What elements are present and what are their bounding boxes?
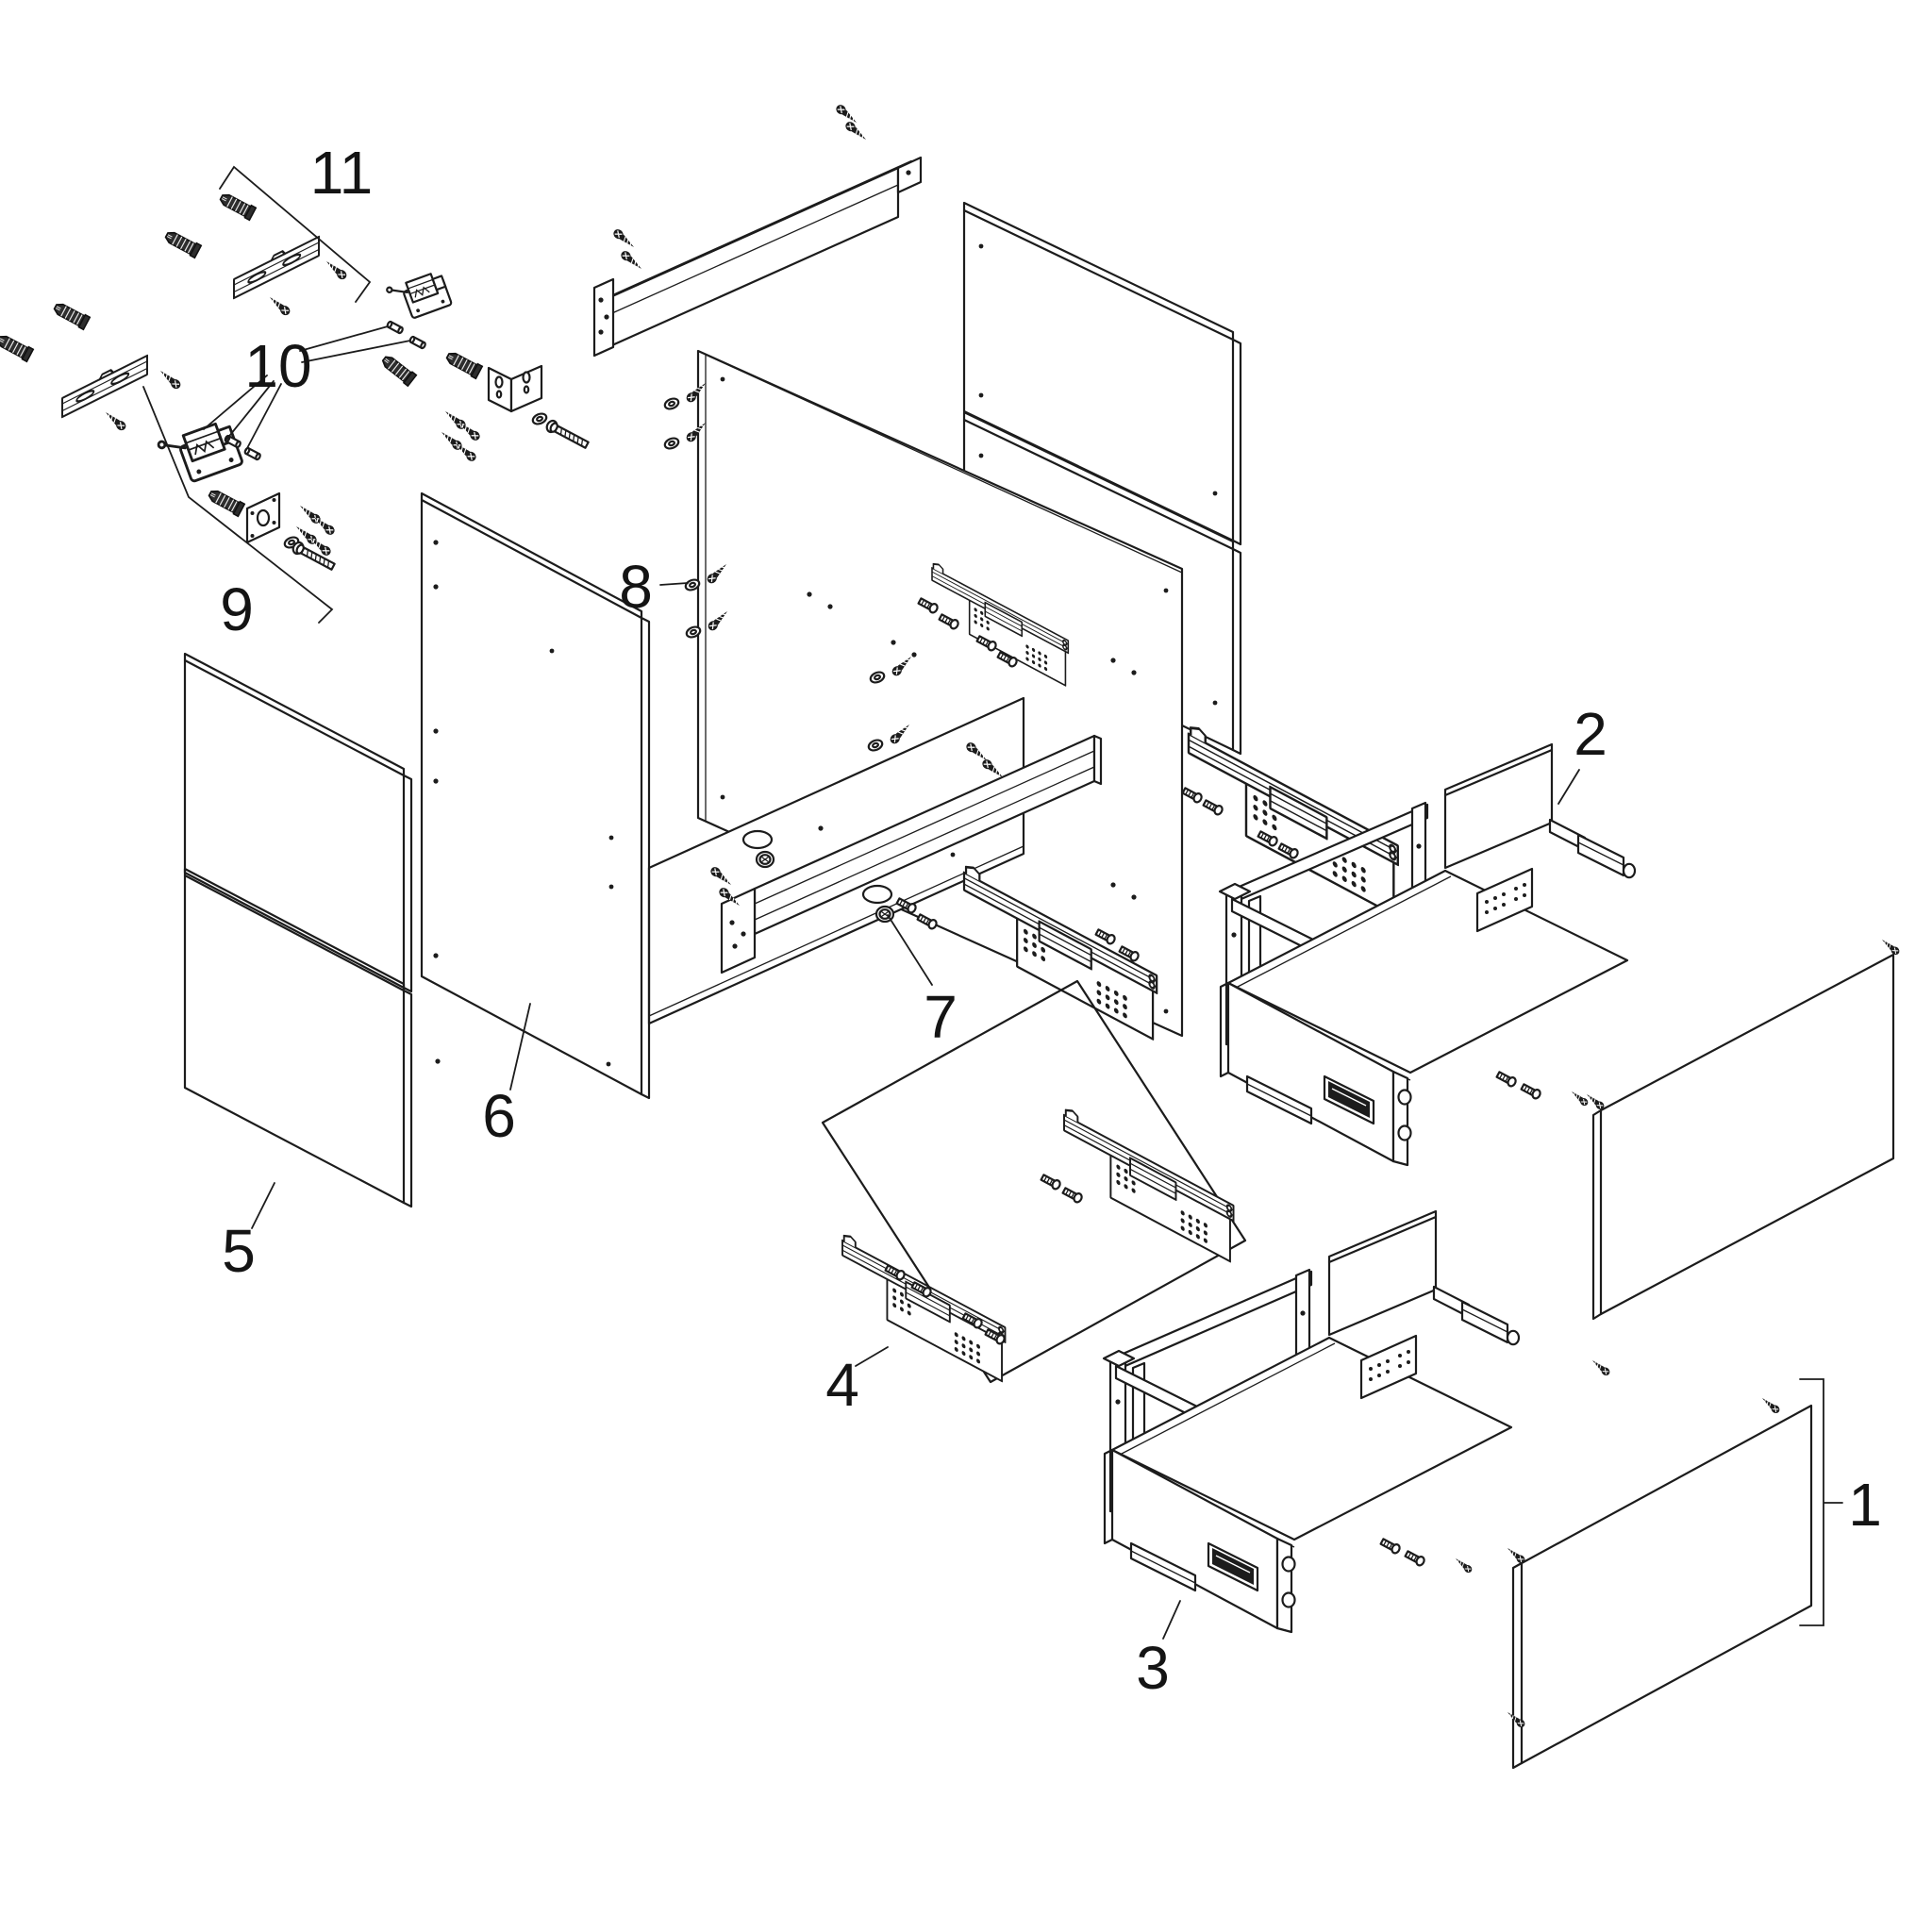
callout-8-label: 8: [619, 553, 653, 621]
callout-6-label: 6: [482, 1082, 516, 1150]
callout-3-label: 3: [1136, 1634, 1170, 1702]
callout-2-label: 2: [1574, 700, 1607, 768]
callout-1-label: 1: [1848, 1471, 1882, 1539]
diagram-canvas: 1 2 3 4 5 6 7 8 9 10 11: [0, 0, 1932, 1932]
callout-10-label: 10: [244, 332, 311, 400]
callout-5-label: 5: [222, 1217, 256, 1285]
callout-9-label: 9: [220, 575, 254, 643]
callout-7-label: 7: [924, 983, 958, 1051]
exploded-assembly-diagram: 1 2 3 4 5 6 7 8 9 10 11: [0, 0, 1932, 1932]
callout-4-label: 4: [825, 1351, 859, 1419]
callout-11-label: 11: [310, 139, 373, 207]
